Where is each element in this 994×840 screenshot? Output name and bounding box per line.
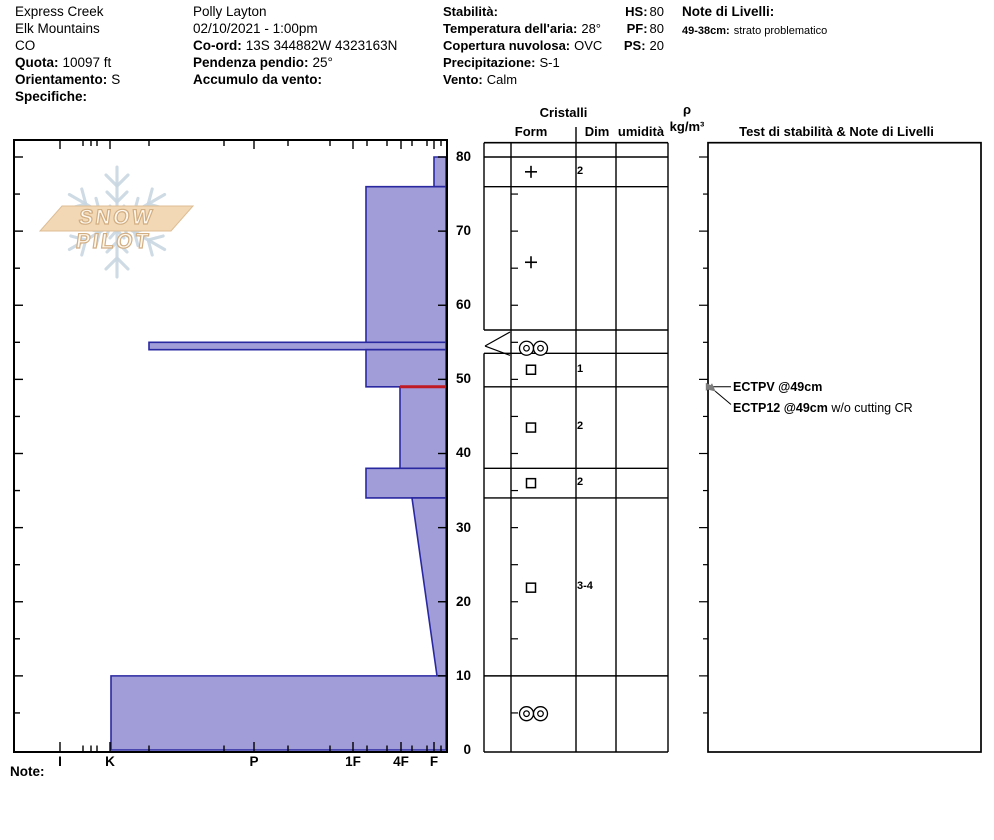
hs-line: HS:80 — [596, 4, 664, 20]
elevation-label: Quota: — [15, 55, 59, 70]
facet-symbol — [527, 583, 536, 592]
pf-line: PF:80 — [596, 21, 664, 37]
depth-label-80: 80 — [449, 149, 471, 165]
snow-layer-4 — [400, 387, 446, 469]
tests-header: Test di stabilità & Note di Livelli — [701, 124, 972, 140]
elevation-value: 10097 ft — [63, 55, 112, 70]
ectp12-bold: ECTP12 @49cm — [733, 401, 828, 415]
pf-value: 80 — [650, 21, 664, 36]
slope-value: 25° — [313, 55, 333, 70]
site-name: Express Creek — [15, 4, 104, 20]
coord-value: 13S 344882W 4323163N — [246, 38, 398, 53]
hs-value: 80 — [650, 4, 664, 19]
depth-label-50: 50 — [449, 371, 471, 387]
slope-label: Pendenza pendio: — [193, 55, 309, 70]
snowflake-logo-arm — [117, 175, 128, 186]
aspect-label: Orientamento: — [15, 72, 107, 87]
cristalli-header: Cristalli — [511, 105, 616, 121]
sky-line: Copertura nuvolosa:OVC — [443, 38, 602, 54]
form-header: Form — [506, 124, 556, 140]
snow-layer-1 — [366, 187, 446, 343]
depth-label-30: 30 — [449, 520, 471, 536]
snowflake-logo-arm — [106, 175, 117, 186]
mtn-range: Elk Mountains — [15, 21, 100, 37]
airtemp-line: Temperatura dell'aria:28° — [443, 21, 601, 37]
dim-value-row6: 2 — [577, 476, 583, 488]
airtemp-label: Temperatura dell'aria: — [443, 21, 577, 36]
depth-label-10: 10 — [449, 668, 471, 684]
ps-value: 20 — [650, 38, 664, 53]
meltform-symbol — [534, 707, 548, 721]
coord-label: Co-ord: — [193, 38, 242, 53]
wind-line: Vento:Calm — [443, 72, 517, 88]
slope-line: Pendenza pendio:25° — [193, 55, 333, 71]
snowpilot-profile-page: { "title_block": { "col1": { "site": "Ex… — [0, 0, 994, 840]
snowflake-logo-arm — [106, 258, 117, 269]
note-label: Note: — [10, 764, 45, 780]
ps-label: PS: — [624, 38, 646, 53]
hardness-label-K: K — [95, 754, 125, 770]
wind-value: Calm — [487, 72, 517, 87]
depth-label-70: 70 — [449, 223, 471, 239]
state: CO — [15, 38, 35, 54]
specifics-label: Specifiche: — [15, 89, 87, 105]
sky-label: Copertura nuvolosa: — [443, 38, 570, 53]
snow-layer-2 — [149, 342, 446, 349]
stability-label: Stabilità: — [443, 4, 498, 20]
layer-note-text: strato problematico — [734, 25, 828, 37]
wind-label: Vento: — [443, 72, 483, 87]
facet-symbol — [527, 365, 536, 374]
dim-value-row1: 2 — [577, 165, 583, 177]
snow-layer-3 — [366, 350, 446, 387]
hardness-label-4F: 4F — [386, 754, 416, 770]
depth-label-40: 40 — [449, 445, 471, 461]
snowflake-logo-arm — [117, 258, 128, 269]
elevation-line: Quota:10097 ft — [15, 55, 111, 71]
meltform-symbol — [520, 707, 534, 721]
precip-value: S-1 — [539, 55, 559, 70]
depth-label-0: 0 — [449, 742, 471, 758]
snow-layer-6 — [412, 498, 446, 676]
test-result-ectp12: ECTP12 @49cm w/o cutting CR — [733, 400, 913, 416]
windload-label: Accumulo da vento: — [193, 72, 322, 88]
layer-notes-title: Note di Livelli: — [682, 4, 774, 20]
obs-datetime: 02/10/2021 - 1:00pm — [193, 21, 318, 37]
dim-value-row4: 1 — [577, 363, 583, 375]
layer-note-range: 49-38cm: — [682, 25, 730, 37]
ectp12-rest: w/o cutting CR — [828, 401, 913, 415]
facet-symbol — [527, 423, 536, 432]
tests-column-frame — [708, 143, 981, 752]
pf-label: PF: — [627, 21, 648, 36]
meltform-symbol — [534, 341, 548, 355]
aspect-value: S — [111, 72, 120, 87]
hardness-label-I: I — [45, 754, 75, 770]
hardness-label-F: F — [419, 754, 449, 770]
dim-value-row7: 3-4 — [577, 580, 593, 592]
dim-value-row5: 2 — [577, 420, 583, 432]
hardness-label-1F: 1F — [338, 754, 368, 770]
depth-label-60: 60 — [449, 297, 471, 313]
aspect-line: Orientamento:S — [15, 72, 120, 88]
precip-line: Precipitazione:S-1 — [443, 55, 560, 71]
test-result-ectpv: ECTPV @49cm — [733, 379, 822, 395]
snow-layer-0 — [434, 157, 446, 187]
snow-layer-5 — [366, 468, 446, 498]
precip-label: Precipitazione: — [443, 55, 535, 70]
depth-label-20: 20 — [449, 594, 471, 610]
ps-line: PS:20 — [596, 38, 664, 54]
hs-label: HS: — [625, 4, 647, 19]
observer-name: Polly Layton — [193, 4, 267, 20]
hardness-label-P: P — [239, 754, 269, 770]
snow-layer-7 — [111, 676, 446, 750]
density-header: ρ — [672, 102, 702, 118]
meltform-symbol — [520, 341, 534, 355]
snowpilot-logo-text: SNOW PILOT — [38, 206, 195, 232]
coord-line: Co-ord:13S 344882W 4323163N — [193, 38, 397, 54]
layer-note-line: 49-38cm:strato problematico — [682, 23, 827, 39]
facet-symbol — [527, 479, 536, 488]
